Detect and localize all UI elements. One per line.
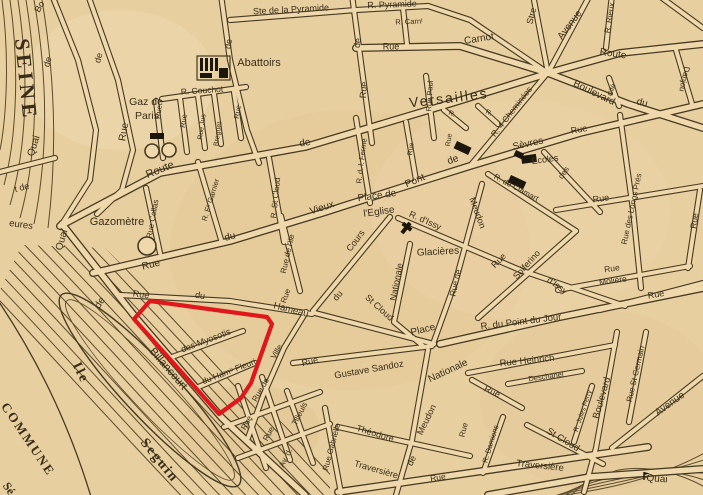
map-label-de: de — [223, 38, 234, 49]
map-label-de: de — [299, 137, 312, 150]
building-icon — [150, 133, 164, 139]
map-label-r-pyramide: R. Pyramide — [367, 0, 417, 10]
map-label-rue: Rue — [358, 81, 369, 98]
map-label-r-carn: R. Carnᵗ — [395, 16, 423, 26]
map-label-rue: Rue — [153, 104, 164, 119]
gas-holder-icon — [162, 143, 176, 157]
map-label-rue: Rue — [232, 104, 243, 119]
map-label-rue: Rue — [178, 113, 189, 128]
map-stage: SEINEBodeQuaideRuet deeuresQuaideBillanc… — [0, 0, 703, 495]
map-label-glaci-res: Glacières — [417, 246, 460, 259]
gas-holder-icon — [145, 144, 159, 158]
map-label-gazom-tre: Gazomètre — [90, 216, 144, 228]
map-label-de: de — [352, 37, 363, 48]
map-image: SEINEBodeQuaideRuet deeuresQuaideBillanc… — [0, 0, 703, 495]
map-label-quai: Quai — [646, 473, 668, 485]
map-label-rue: Rue — [383, 41, 400, 51]
map-label-du: du — [194, 290, 205, 301]
map-label-abattoirs: Abattoirs — [237, 57, 281, 69]
